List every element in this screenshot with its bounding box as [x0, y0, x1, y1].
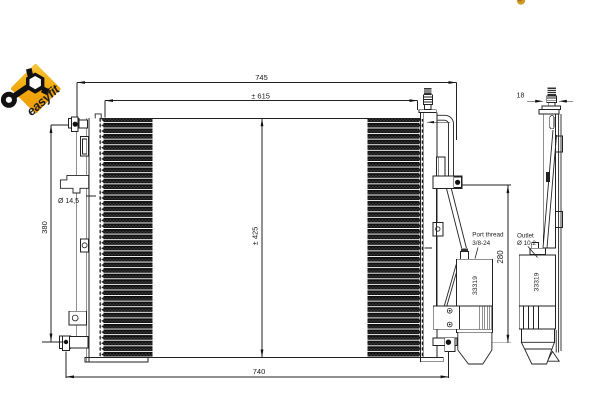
svg-text:± 615: ± 615 [251, 91, 270, 100]
svg-text:Port thread: Port thread [472, 232, 504, 239]
svg-text:18: 18 [517, 93, 525, 100]
svg-text:280: 280 [496, 250, 505, 264]
svg-text:3/8-24: 3/8-24 [472, 240, 490, 247]
svg-text:Ø 10.2: Ø 10.2 [517, 240, 536, 247]
svg-text:Ø 14,5: Ø 14,5 [58, 198, 79, 205]
svg-text:745: 745 [255, 73, 268, 82]
svg-text:380: 380 [40, 221, 49, 234]
svg-text:33319: 33319 [472, 276, 479, 295]
svg-text:740: 740 [253, 367, 266, 376]
svg-text:Outlet: Outlet [517, 232, 534, 239]
svg-text:± 425: ± 425 [251, 227, 260, 246]
svg-text:33319: 33319 [534, 272, 541, 291]
